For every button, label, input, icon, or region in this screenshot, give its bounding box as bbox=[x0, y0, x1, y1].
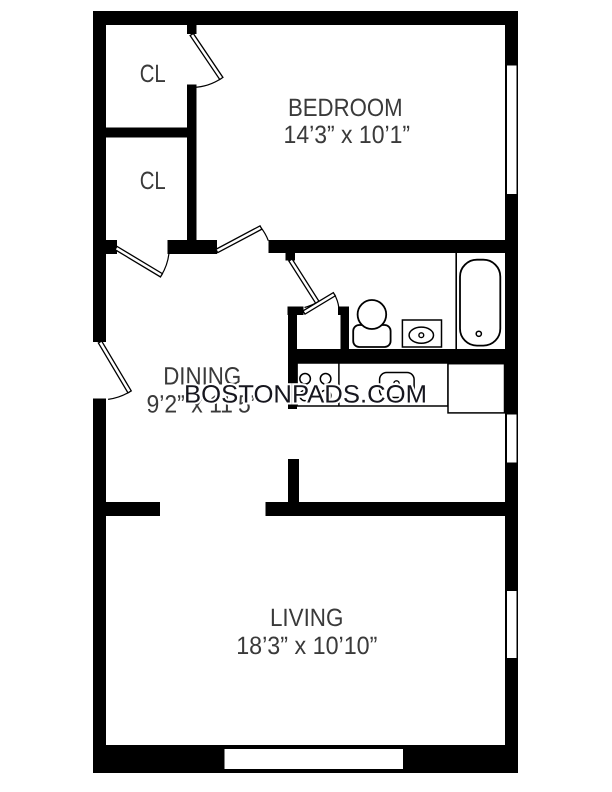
svg-text:18’3” x 10’10”: 18’3” x 10’10” bbox=[236, 632, 377, 660]
svg-text:CL: CL bbox=[140, 167, 166, 195]
svg-text:BEDROOM: BEDROOM bbox=[288, 94, 403, 122]
svg-text:BOSTONPADS.COM: BOSTONPADS.COM bbox=[184, 380, 427, 408]
svg-text:14’3” x 10’1”: 14’3” x 10’1” bbox=[284, 121, 411, 149]
svg-text:CL: CL bbox=[140, 60, 166, 88]
svg-text:LIVING: LIVING bbox=[270, 604, 344, 632]
